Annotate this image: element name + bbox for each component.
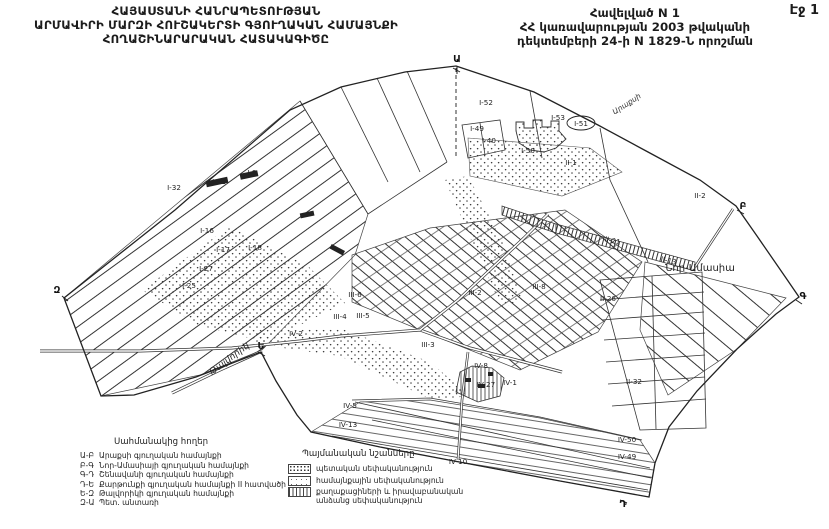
boundary-corner-letter: Ա [453, 54, 461, 65]
parcel-label: IV-50 [618, 435, 637, 444]
legend-border-label: Արաքսի գյուղական համայնքի [99, 451, 222, 460]
parcel-label: I-16 [200, 226, 214, 235]
parcel-label: IV-49 [618, 452, 637, 461]
boundary-corner-letter: Գ [800, 291, 807, 302]
legend-swatch-dots [288, 464, 311, 474]
parcel-label: II-32 [626, 377, 642, 386]
boundary-corner-letter: Բ [740, 201, 747, 212]
parcel-label: I-52 [479, 98, 493, 107]
parcel-label: I-11 [212, 177, 226, 186]
legend-symbol-label: քաղաքացիների և իրավաբանական անձանց սեփակ… [316, 487, 476, 505]
parcel-label: II-2 [694, 191, 705, 200]
scanned-map-page: ՀԱՅԱՍՏԱՆԻ ՀԱՆՐԱՊԵՏՈՒԹՅԱՆ ԱՐՄԱՎԻՐԻ ՄԱՐԶԻ … [0, 0, 829, 529]
legend-border-label: Քարթունքի գյուղական համայնքի II հատվածի [99, 480, 286, 489]
parcel-label: IV-5 [343, 401, 357, 410]
parcel-label: II-1 [565, 158, 576, 167]
legend-border-label: Թալվորիկի գյուղական համայնքի [99, 489, 234, 498]
legend-symbol-label: համայնքային սեփականություն [316, 476, 444, 485]
parcel-label: I-9 [247, 168, 257, 177]
parcel-label: I-27 [199, 264, 213, 273]
parcel-label: IV-27 [477, 380, 495, 389]
legend-symbol-label: պետական սեփականություն [316, 464, 433, 473]
parcel-label: III-5 [356, 311, 370, 320]
parcel-label: III-6 [348, 290, 362, 299]
place-label: Արաքսի [611, 91, 643, 116]
parcel-label: IV-1 [503, 378, 517, 387]
parcel-label: I-50 [521, 146, 535, 155]
legend-border-code: Ա-Բ [80, 451, 99, 460]
legend-border-label: Շենավանի գյուղական համայնքի [99, 470, 234, 479]
legend-border-code: Բ-Գ [80, 461, 99, 470]
parcel-label: IV-2 [289, 329, 303, 338]
legend-symbols-title: Պայմանական նշանները [302, 450, 498, 459]
legend-border-code: Գ-Դ [80, 470, 99, 479]
parcel-label: I-18 [248, 243, 262, 252]
parcel-label: I-32 [167, 183, 181, 192]
parcel-label: I-51 [574, 119, 588, 128]
parcel-label: I-25 [182, 281, 196, 290]
legend-border-label: Նոր-Ամասիայի գյուղական համայնքի [99, 461, 249, 470]
parcel-label: IV-8 [474, 361, 488, 370]
legend-swatch-sparse [288, 476, 311, 486]
boundary-corner-letter: Ե [258, 341, 265, 352]
parcel-label: I-17 [216, 245, 230, 254]
parcel-label: III-3 [421, 340, 435, 349]
place-label: Նոր-Ամասիա [665, 263, 735, 274]
parcel-label: I-40 [482, 136, 496, 145]
parcel-label: III-8 [532, 282, 546, 291]
parcel-label: I-49 [470, 124, 484, 133]
legend-border-code: Ե-Զ [80, 489, 99, 498]
boundary-corner-letter: Դ [620, 499, 627, 510]
legend-symbols: Պայմանական նշանները պետական սեփականությո… [288, 450, 498, 507]
parcel-label: II-26 [600, 294, 616, 303]
legend-symbols-items: պետական սեփականությունհամայնքային սեփակա… [288, 464, 498, 505]
parcel-label: IV-13 [339, 420, 357, 429]
parcel-label: III-2 [468, 288, 482, 297]
legend-symbol-item: քաղաքացիների և իրավաբանական անձանց սեփակ… [288, 487, 498, 505]
legend-border-code: Զ-Ա [80, 498, 99, 507]
legend-symbol-item: պետական սեփականություն [288, 464, 498, 474]
parcel-label: III-4 [333, 312, 347, 321]
boundary-corner-letter: Զ [54, 285, 61, 296]
legend-bordering-lands-title: Սահմանակից հողեր [114, 438, 330, 447]
legend-symbol-item: համայնքային սեփականություն [288, 476, 498, 486]
legend-swatch-vlines [288, 487, 311, 497]
legend-border-code: Դ-Ե [80, 480, 99, 489]
parcel-label: I-53 [551, 113, 565, 122]
legend-border-label: Պետ. անտառի [99, 498, 159, 507]
